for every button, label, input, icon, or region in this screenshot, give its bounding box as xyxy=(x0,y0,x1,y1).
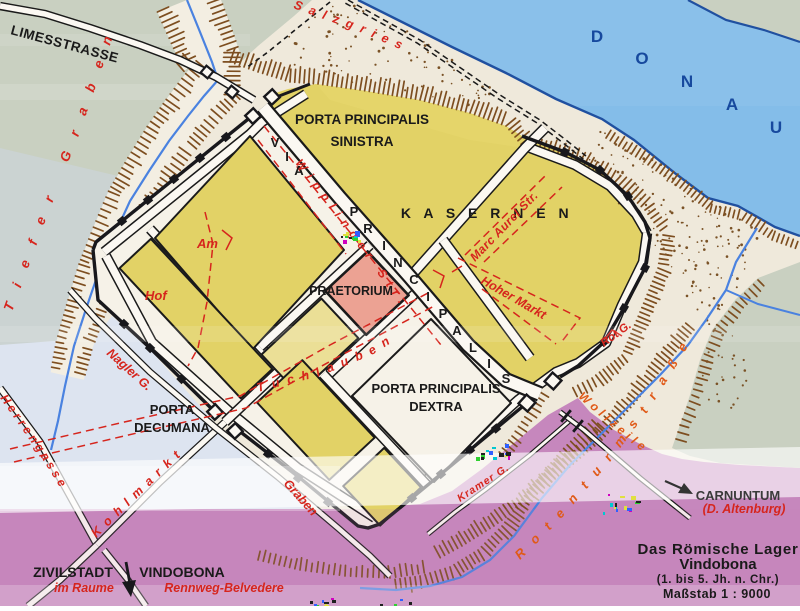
svg-text:PRAETORIUM: PRAETORIUM xyxy=(309,284,393,298)
svg-text:C: C xyxy=(409,272,419,287)
svg-text:R: R xyxy=(363,221,373,236)
svg-text:im Raume: im Raume xyxy=(54,581,114,595)
svg-text:Hof: Hof xyxy=(145,288,168,303)
svg-text:N: N xyxy=(681,72,693,91)
svg-text:PORTA: PORTA xyxy=(150,402,195,417)
svg-text:N: N xyxy=(393,255,402,270)
svg-text:PORTA PRINCIPALIS: PORTA PRINCIPALIS xyxy=(295,112,429,127)
svg-text:(1. bis 5. Jh. n. Chr.): (1. bis 5. Jh. n. Chr.) xyxy=(657,574,779,586)
svg-text:Vindobona: Vindobona xyxy=(679,556,757,573)
svg-text:SINISTRA: SINISTRA xyxy=(330,134,393,149)
svg-text:Rennweg-Belvedere: Rennweg-Belvedere xyxy=(164,581,284,595)
svg-text:S: S xyxy=(502,371,511,386)
svg-text:(D. Altenburg): (D. Altenburg) xyxy=(703,502,786,516)
svg-text:Maßstab 1 : 9000: Maßstab 1 : 9000 xyxy=(663,587,771,601)
svg-text:DEXTRA: DEXTRA xyxy=(409,399,463,414)
svg-text:I: I xyxy=(285,149,289,164)
svg-text:K A S E R N E N: K A S E R N E N xyxy=(401,205,573,221)
svg-text:D: D xyxy=(591,27,603,46)
svg-text:PORTA PRINCIPALIS: PORTA PRINCIPALIS xyxy=(371,381,500,396)
svg-text:L: L xyxy=(469,340,477,355)
svg-text:ZIVILSTADT: ZIVILSTADT xyxy=(33,564,113,580)
svg-text:O: O xyxy=(635,49,648,68)
svg-text:I: I xyxy=(382,238,386,253)
svg-text:U: U xyxy=(770,118,782,137)
svg-text:Am: Am xyxy=(196,236,218,251)
svg-text:CARNUNTUM: CARNUNTUM xyxy=(696,488,781,503)
svg-text:P: P xyxy=(350,204,359,219)
svg-text:I: I xyxy=(487,356,491,371)
svg-text:P: P xyxy=(439,306,448,321)
svg-text:VINDOBONA: VINDOBONA xyxy=(139,564,225,580)
svg-text:V: V xyxy=(271,135,280,150)
svg-text:I: I xyxy=(426,289,430,304)
svg-text:A: A xyxy=(726,95,738,114)
svg-text:DECUMANA: DECUMANA xyxy=(134,420,210,435)
svg-text:A: A xyxy=(452,323,462,338)
